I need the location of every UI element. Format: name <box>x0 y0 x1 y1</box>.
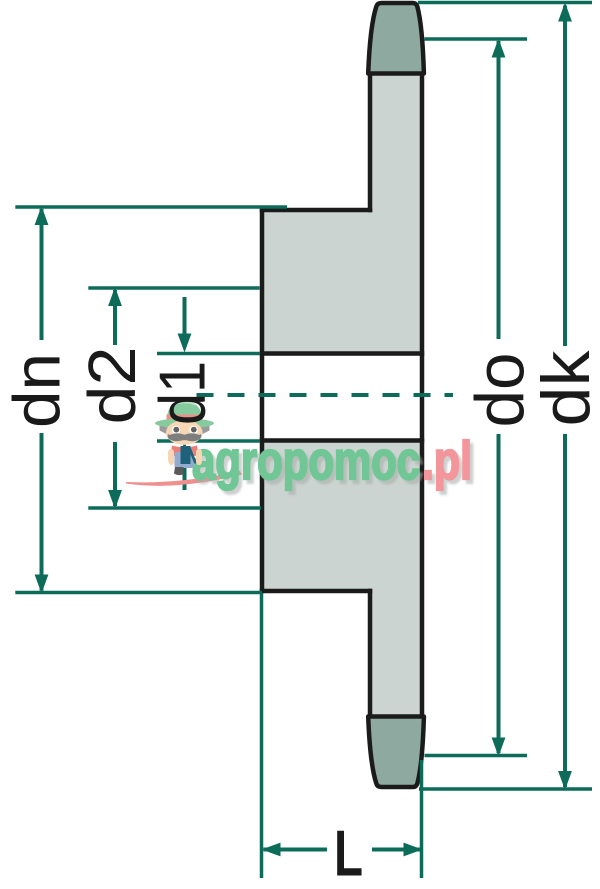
svg-text:d2: d2 <box>75 347 150 425</box>
svg-text:agropomoc: agropomoc <box>192 431 420 491</box>
svg-text:dn: dn <box>0 353 74 428</box>
svg-text:do: do <box>462 353 539 428</box>
svg-text:L: L <box>334 817 363 889</box>
svg-text:.pl: .pl <box>422 431 472 491</box>
svg-text:dk: dk <box>528 349 600 426</box>
svg-text:d1: d1 <box>146 361 219 425</box>
